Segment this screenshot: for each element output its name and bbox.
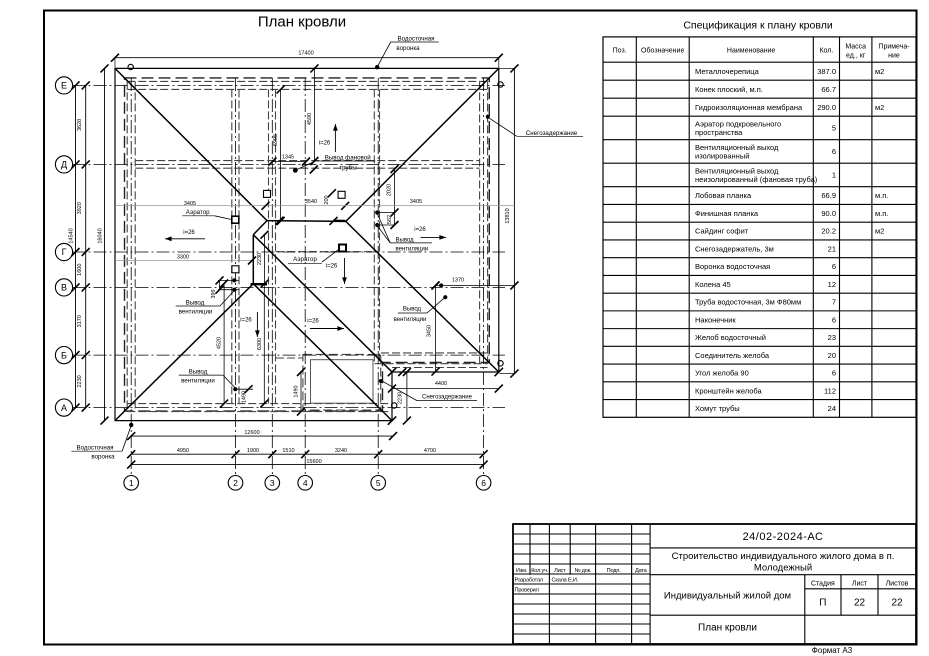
svg-text:Дата: Дата <box>635 568 648 574</box>
svg-text:Снегозадержатель, 3м: Снегозадержатель, 3м <box>695 244 774 253</box>
svg-text:2020: 2020 <box>387 184 393 196</box>
svg-text:Угол желоба 90: Угол желоба 90 <box>695 369 749 378</box>
svg-text:вентиляции: вентиляции <box>396 247 429 253</box>
svg-text:Стадия: Стадия <box>811 580 835 587</box>
svg-text:Лист: Лист <box>852 580 868 587</box>
svg-text:Наименование: Наименование <box>727 48 776 55</box>
svg-text:22: 22 <box>854 598 866 609</box>
svg-text:м2: м2 <box>875 103 884 112</box>
svg-text:Вывод: Вывод <box>186 300 205 307</box>
svg-text:20.2: 20.2 <box>821 227 836 236</box>
svg-text:66.7: 66.7 <box>821 85 836 94</box>
svg-text:6300: 6300 <box>257 338 263 350</box>
svg-text:Г: Г <box>62 247 67 257</box>
svg-text:трубы: трубы <box>339 164 357 171</box>
svg-text:6: 6 <box>481 478 486 488</box>
svg-text:А: А <box>61 403 67 413</box>
svg-text:Аэратор: Аэратор <box>293 256 317 263</box>
svg-text:3920: 3920 <box>77 202 83 214</box>
svg-text:i=26: i=26 <box>307 319 319 325</box>
svg-text:Вывод: Вывод <box>396 237 415 243</box>
svg-text:3240: 3240 <box>335 448 347 454</box>
svg-text:i=26: i=26 <box>240 318 252 324</box>
svg-text:Вывод: Вывод <box>403 307 422 313</box>
svg-text:Обозначение: Обозначение <box>641 47 684 55</box>
svg-text:м.п.: м.п. <box>875 209 888 218</box>
svg-text:5: 5 <box>832 124 836 133</box>
svg-text:Изм.: Изм. <box>516 568 528 574</box>
svg-text:Кол.: Кол. <box>819 48 833 55</box>
svg-text:Строительство индивидуального: Строительство индивидуального жилого дом… <box>672 551 895 562</box>
svg-text:Водосточная: Водосточная <box>397 35 434 42</box>
svg-text:Вывод фановой: Вывод фановой <box>325 154 371 161</box>
svg-text:1345: 1345 <box>282 154 294 160</box>
svg-text:Лобовая планка: Лобовая планка <box>695 191 752 200</box>
svg-text:пространства: пространства <box>695 128 743 137</box>
svg-text:3300: 3300 <box>177 254 189 260</box>
svg-text:воронка: воронка <box>91 453 115 460</box>
svg-text:П: П <box>819 598 826 609</box>
svg-text:В: В <box>61 283 67 293</box>
svg-text:ние: ние <box>888 53 900 60</box>
svg-text:изолированный: изолированный <box>695 151 749 160</box>
svg-text:3170: 3170 <box>77 315 83 327</box>
svg-text:Труба водосточная, 3м Ф80мм: Труба водосточная, 3м Ф80мм <box>695 298 801 307</box>
svg-text:66.9: 66.9 <box>821 191 836 200</box>
svg-text:21: 21 <box>828 244 836 253</box>
svg-text:№ док.: № док. <box>575 568 592 574</box>
svg-text:Индивидуальный жилой дом: Индивидуальный жилой дом <box>664 591 791 602</box>
svg-text:неизолированный (фановая труба: неизолированный (фановая труба) <box>695 175 818 184</box>
svg-text:387.0: 387.0 <box>817 67 836 76</box>
svg-text:План кровли: План кровли <box>698 623 757 634</box>
svg-text:1: 1 <box>832 171 836 180</box>
svg-text:4700: 4700 <box>424 448 436 454</box>
svg-text:Сайдинг софит: Сайдинг софит <box>695 227 749 236</box>
svg-text:Кронштейн желоба: Кронштейн желоба <box>695 386 763 395</box>
svg-text:1600: 1600 <box>77 264 83 276</box>
svg-text:Поз.: Поз. <box>613 48 627 55</box>
svg-text:6: 6 <box>832 262 836 271</box>
svg-text:6: 6 <box>832 369 836 378</box>
svg-text:4520: 4520 <box>216 337 222 349</box>
svg-text:4950: 4950 <box>177 448 189 454</box>
svg-text:Б: Б <box>61 350 67 360</box>
svg-text:3: 3 <box>270 478 275 488</box>
svg-text:вентиляции: вентиляции <box>181 378 215 385</box>
svg-text:2230: 2230 <box>77 375 83 387</box>
svg-text:399: 399 <box>211 289 217 298</box>
svg-text:24/02-2024-АС: 24/02-2024-АС <box>743 531 824 543</box>
svg-text:17400: 17400 <box>298 51 313 57</box>
svg-text:Аэратор: Аэратор <box>186 209 210 216</box>
svg-text:562: 562 <box>387 215 393 224</box>
svg-text:Соединитель желоба: Соединитель желоба <box>695 351 770 360</box>
svg-text:Гидроизоляционная мембрана: Гидроизоляционная мембрана <box>695 103 803 112</box>
svg-text:Примеча-: Примеча- <box>878 44 910 51</box>
svg-text:24: 24 <box>828 404 836 413</box>
svg-text:Скала Е.И.: Скала Е.И. <box>552 578 579 584</box>
svg-text:Разработал: Разработал <box>515 578 543 584</box>
svg-text:4590: 4590 <box>307 113 313 125</box>
svg-text:Масса: Масса <box>845 44 866 51</box>
svg-text:Листов: Листов <box>886 580 909 587</box>
svg-text:Д: Д <box>61 160 67 170</box>
svg-text:3620: 3620 <box>77 119 83 131</box>
svg-text:2230: 2230 <box>257 253 263 265</box>
svg-text:вентиляции: вентиляции <box>179 309 213 316</box>
svg-text:90.0: 90.0 <box>821 209 836 218</box>
svg-text:15600: 15600 <box>306 459 321 465</box>
svg-text:112: 112 <box>824 386 836 395</box>
svg-text:i=26: i=26 <box>183 230 195 236</box>
svg-text:Проверил: Проверил <box>515 588 539 594</box>
svg-text:Финишная планка: Финишная планка <box>695 209 759 218</box>
svg-text:м.п.: м.п. <box>875 191 888 200</box>
svg-text:м2: м2 <box>875 67 884 76</box>
svg-text:м2: м2 <box>875 227 884 236</box>
svg-text:Е: Е <box>61 81 67 91</box>
svg-text:1900: 1900 <box>247 448 259 454</box>
svg-text:1370: 1370 <box>452 278 464 284</box>
svg-text:Молодежный: Молодежный <box>754 563 812 574</box>
svg-text:4400: 4400 <box>435 381 447 387</box>
svg-text:i=26: i=26 <box>319 140 331 146</box>
svg-text:Желоб водосточный: Желоб водосточный <box>695 333 766 342</box>
svg-text:13810: 13810 <box>505 208 511 223</box>
svg-text:7: 7 <box>832 298 836 307</box>
svg-text:Снегозадержание: Снегозадержание <box>422 394 473 400</box>
svg-text:12600: 12600 <box>244 430 259 436</box>
svg-text:5: 5 <box>376 478 381 488</box>
svg-text:ед., кг: ед., кг <box>846 53 866 60</box>
svg-text:Воронка водосточная: Воронка водосточная <box>695 262 770 271</box>
svg-text:3540: 3540 <box>305 199 317 205</box>
svg-text:4: 4 <box>303 478 308 488</box>
svg-text:1490: 1490 <box>242 391 248 403</box>
svg-text:i=26: i=26 <box>326 264 338 270</box>
svg-text:22: 22 <box>891 598 903 609</box>
svg-text:Кол.уч.: Кол.уч. <box>531 568 549 574</box>
svg-text:Конек плоский, м.п.: Конек плоский, м.п. <box>695 85 763 94</box>
svg-text:1490: 1490 <box>293 385 299 397</box>
svg-text:Водосточная: Водосточная <box>76 445 113 452</box>
svg-text:6905: 6905 <box>273 134 279 146</box>
svg-text:3405: 3405 <box>410 199 422 205</box>
svg-text:Подп.: Подп. <box>607 568 622 574</box>
svg-text:Спецификация к плану кровли: Спецификация к плану кровли <box>683 19 833 31</box>
svg-text:Вывод: Вывод <box>189 369 208 376</box>
svg-text:3450: 3450 <box>427 325 433 337</box>
svg-text:16040: 16040 <box>98 228 104 243</box>
svg-text:6: 6 <box>832 315 836 324</box>
svg-text:6: 6 <box>832 147 836 156</box>
svg-text:2230: 2230 <box>398 392 404 404</box>
svg-text:2: 2 <box>233 478 238 488</box>
svg-text:1: 1 <box>129 478 134 488</box>
svg-text:1510: 1510 <box>282 448 294 454</box>
svg-text:290.0: 290.0 <box>817 103 836 112</box>
svg-text:i=26: i=26 <box>414 227 426 233</box>
svg-text:23: 23 <box>828 333 836 342</box>
svg-text:План кровли: План кровли <box>258 14 346 31</box>
svg-text:Колена 45: Колена 45 <box>695 280 731 289</box>
svg-text:20: 20 <box>828 351 836 360</box>
svg-text:Формат А3: Формат А3 <box>812 646 853 655</box>
svg-text:Наконечник: Наконечник <box>695 315 736 324</box>
svg-text:Хомут трубы: Хомут трубы <box>695 404 740 413</box>
svg-text:вентиляции: вентиляции <box>394 317 427 323</box>
svg-text:14540: 14540 <box>69 228 75 243</box>
svg-text:Лист: Лист <box>554 568 566 574</box>
svg-text:12: 12 <box>828 280 836 289</box>
svg-text:Металлочерепица: Металлочерепица <box>695 67 760 76</box>
svg-text:воронка: воронка <box>396 45 420 52</box>
svg-text:3405: 3405 <box>184 201 196 207</box>
